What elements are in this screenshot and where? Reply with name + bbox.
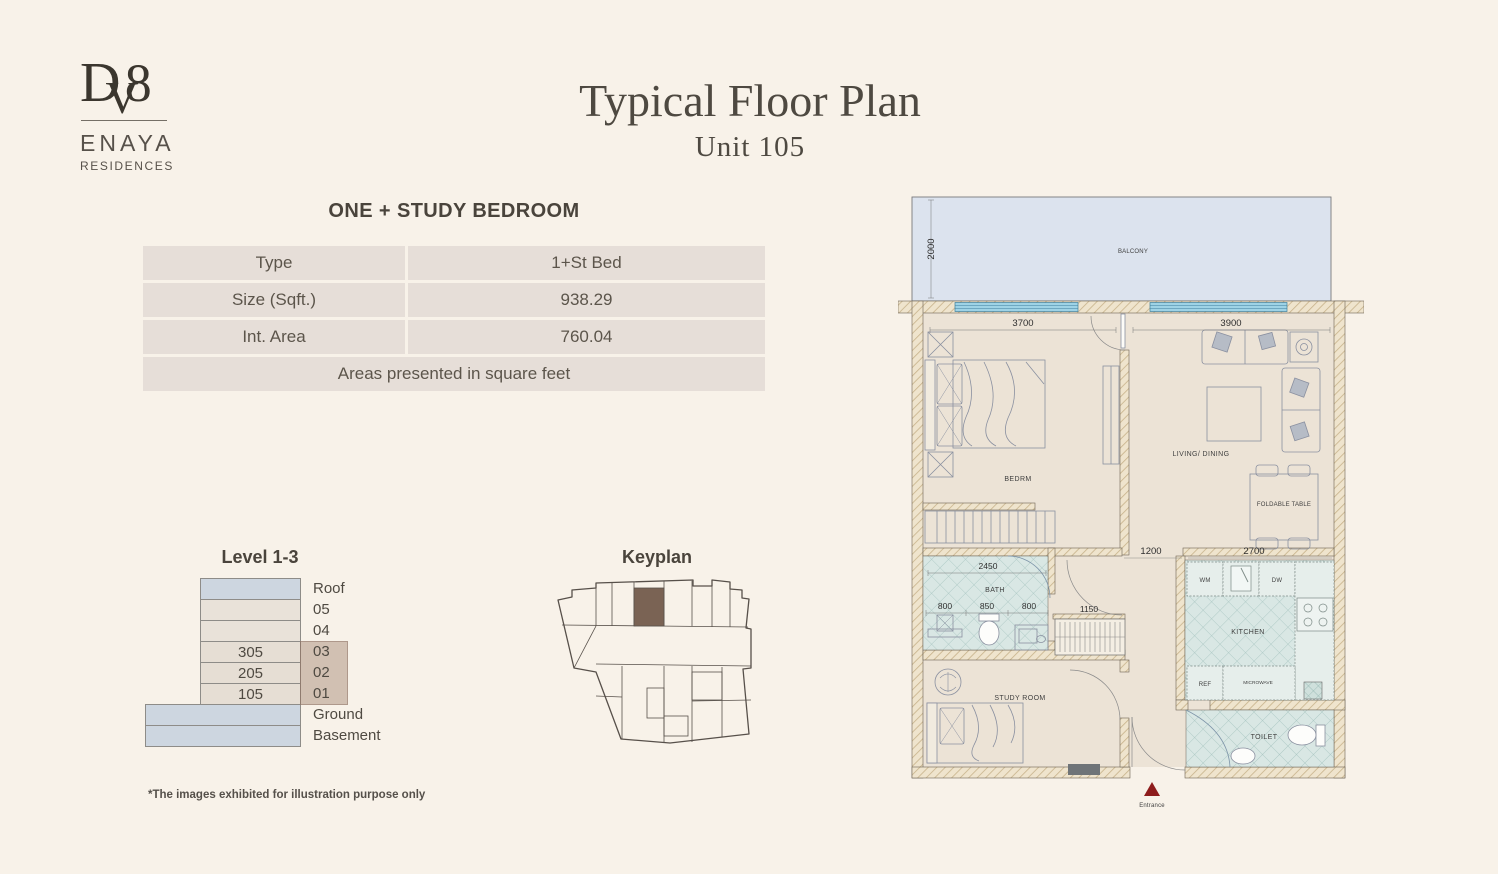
level-label: 03 [313, 641, 330, 663]
foldable-table-label: FOLDABLE TABLE [1257, 502, 1311, 508]
table-cell-value: 938.29 [408, 283, 765, 317]
dw-label: DW [1272, 578, 1283, 584]
level-label: 04 [313, 620, 330, 642]
levels-diagram: 305 205 105 Roof 05 04 03 02 01 Ground B… [145, 578, 385, 750]
level-label: Roof [313, 578, 345, 600]
level-row-04 [200, 620, 301, 642]
dim-closet-width: 1150 [1080, 604, 1099, 614]
dim-bath-a: 800 [938, 601, 952, 611]
floorplan-drawing: BALCONY 2000 [898, 186, 1364, 814]
entrance-mat [1068, 764, 1100, 775]
table-note-row: Areas presented in square feet [143, 357, 765, 391]
bedroom-label: BEDRM [1004, 476, 1031, 483]
table-cell-value: 760.04 [408, 320, 765, 354]
brochure-page: DV8 ENAYA RESIDENCES Typical Floor Plan … [0, 0, 1498, 874]
table-cell-label: Type [143, 246, 405, 280]
entrance-label: Entrance [1139, 803, 1165, 809]
brand-logo: DV8 ENAYA RESIDENCES [80, 54, 200, 173]
kitchen-label: KITCHEN [1231, 629, 1265, 636]
level-unit-number: 205 [238, 665, 263, 682]
dim-kitchen-width: 2700 [1243, 546, 1264, 557]
dv8-monogram: DV8 [80, 54, 200, 113]
page-title: Typical Floor Plan [450, 76, 1050, 127]
level-row-03: 305 [200, 641, 301, 663]
level-row-roof [200, 578, 301, 600]
level-row-05 [200, 599, 301, 621]
page-title-block: Typical Floor Plan Unit 105 [450, 76, 1050, 164]
table-cell-label: Int. Area [143, 320, 405, 354]
level-label: Ground [313, 704, 363, 726]
table-row: Type 1+St Bed [143, 246, 765, 280]
level-row-02: 205 [200, 662, 301, 684]
table-cell-value: 1+St Bed [408, 246, 765, 280]
dim-balcony-depth: 2000 [926, 238, 937, 259]
balcony-label: BALCONY [1118, 249, 1148, 255]
dim-bath-b: 850 [980, 601, 994, 611]
level-label: 02 [313, 662, 330, 684]
table-row: Size (Sqft.) 938.29 [143, 283, 765, 317]
living-label: LIVING/ DINING [1173, 451, 1230, 458]
unit-type-heading: ONE + STUDY BEDROOM [143, 200, 765, 223]
toilet-label: TOILET [1251, 734, 1278, 741]
study-label: STUDY ROOM [994, 695, 1045, 702]
page-subtitle: Unit 105 [450, 131, 1050, 164]
microwave-label: MICROWAVE [1243, 680, 1273, 686]
brand-name: ENAYA [80, 130, 200, 157]
brand-subname: RESIDENCES [80, 159, 200, 173]
levels-title: Level 1-3 [145, 547, 375, 568]
level-unit-number: 105 [238, 686, 263, 703]
hall-closet [1055, 619, 1125, 655]
level-row-basement [145, 725, 301, 747]
level-label: 01 [313, 683, 330, 705]
level-row-ground [145, 704, 301, 726]
unit-info-table: Type 1+St Bed Size (Sqft.) 938.29 Int. A… [143, 246, 765, 394]
table-cell-label: Size (Sqft.) [143, 283, 405, 317]
level-unit-number: 305 [238, 644, 263, 661]
bath-label: BATH [985, 587, 1005, 594]
level-label: 05 [313, 599, 330, 621]
dim-hall-opening: 1200 [1140, 546, 1161, 557]
keyplan-highlighted-unit [634, 588, 664, 626]
dim-bath-width: 2450 [979, 561, 998, 571]
level-row-01: 105 [200, 683, 301, 705]
dim-bedroom-width: 3700 [1012, 318, 1033, 329]
keyplan-title: Keyplan [552, 547, 762, 568]
disclaimer-footnote: *The images exhibited for illustration p… [148, 789, 425, 801]
table-row: Int. Area 760.04 [143, 320, 765, 354]
level-label: Basement [313, 725, 381, 747]
table-note: Areas presented in square feet [143, 357, 765, 391]
entrance-arrow [1144, 782, 1160, 796]
dim-living-width: 3900 [1220, 318, 1241, 329]
monogram-digit-8: 8 [125, 53, 152, 113]
wm-label: WM [1199, 578, 1210, 584]
keyplan-drawing [552, 576, 762, 761]
ref-label: REF [1199, 682, 1212, 688]
dim-bath-c: 800 [1022, 601, 1036, 611]
